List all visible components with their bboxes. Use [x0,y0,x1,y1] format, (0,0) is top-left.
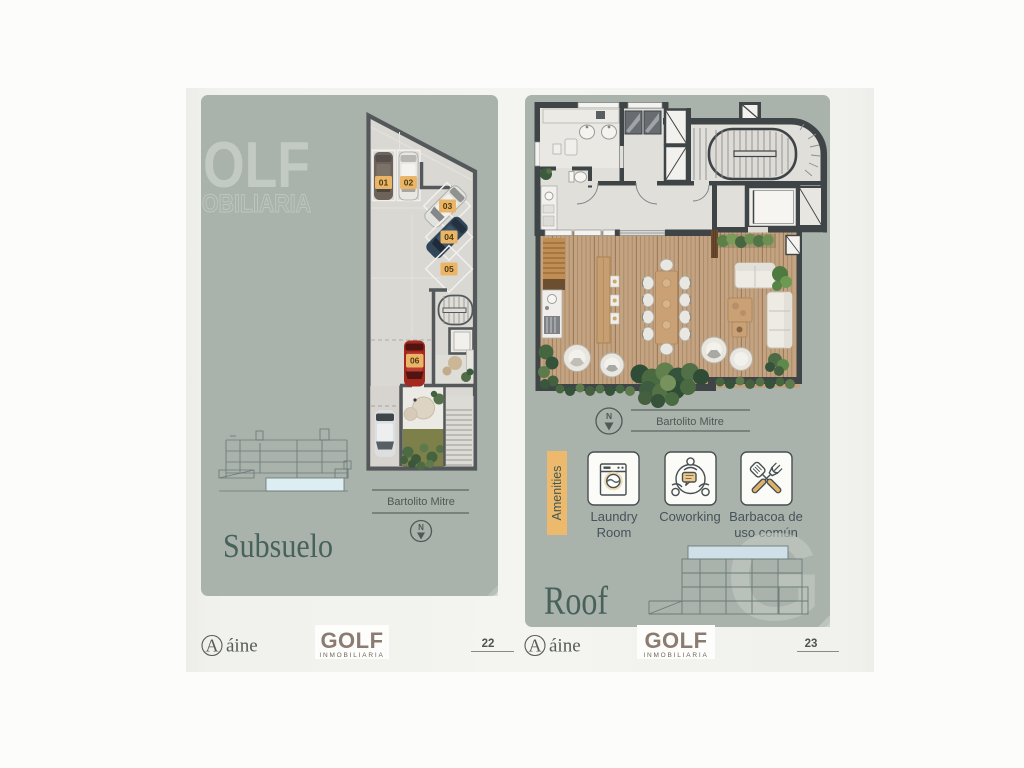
svg-text:03: 03 [443,201,453,211]
svg-text:Bartolito Mitre: Bartolito Mitre [656,416,724,428]
svg-text:04: 04 [444,232,454,242]
svg-text:INMOBILIARIA: INMOBILIARIA [319,652,384,659]
svg-text:23: 23 [805,638,818,650]
svg-text:01: 01 [379,178,389,188]
svg-text:N: N [418,523,424,532]
svg-text:05: 05 [444,264,454,274]
svg-text:Laundry: Laundry [591,509,638,524]
svg-text:G: G [726,509,822,647]
svg-text:OBILIARIA: OBILIARIA [202,190,311,218]
svg-text:áine: áine [226,636,258,657]
svg-text:Room: Room [597,525,632,540]
svg-text:GOLF: GOLF [320,628,383,653]
svg-text:N: N [606,411,612,421]
svg-text:Amenities: Amenities [550,466,564,521]
svg-text:Roof: Roof [544,578,609,623]
svg-text:áine: áine [549,636,581,657]
svg-text:INMOBILIARIA: INMOBILIARIA [643,652,708,659]
svg-text:Subsuelo: Subsuelo [223,528,333,565]
svg-text:A: A [206,636,219,656]
svg-text:06: 06 [410,356,420,366]
svg-text:22: 22 [482,638,495,650]
svg-text:02: 02 [404,178,414,188]
svg-text:A: A [529,636,542,656]
svg-text:Bartolito Mitre: Bartolito Mitre [387,496,455,508]
svg-text:GOLF: GOLF [644,628,707,653]
svg-text:Coworking: Coworking [659,509,720,524]
